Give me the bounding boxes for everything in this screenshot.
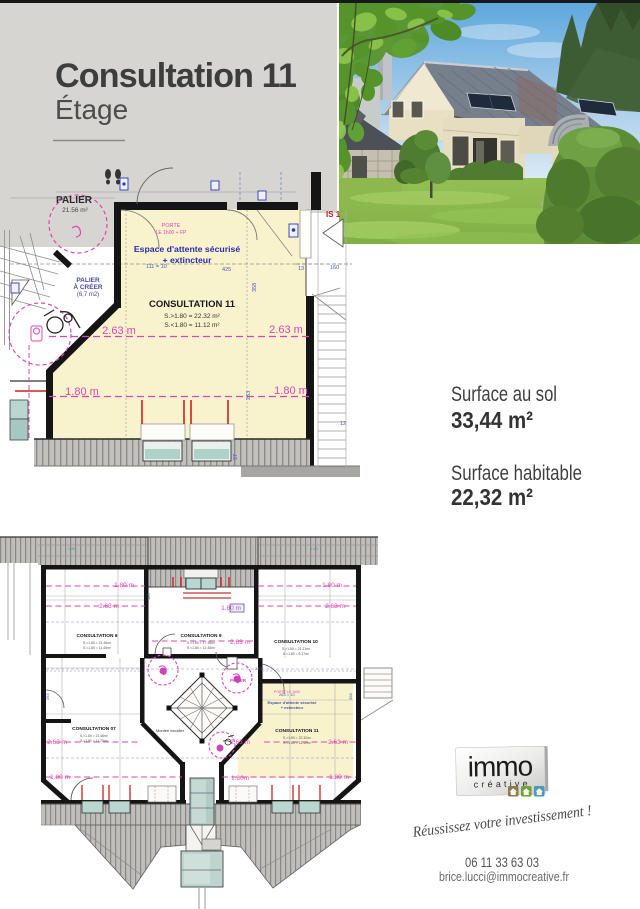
svg-text:358: 358 (252, 283, 258, 292)
svg-text:PALIER: PALIER (76, 277, 100, 284)
svg-text:CONSULTATION 10: CONSULTATION 10 (274, 639, 318, 645)
svg-text:1.80 m: 1.80 m (329, 774, 349, 781)
svg-text:1.80 m: 1.80 m (65, 386, 99, 398)
svg-text:263 = 10: 263 = 10 (279, 692, 295, 697)
svg-text:CONSULTATION 07: CONSULTATION 07 (72, 726, 116, 732)
svg-text:13: 13 (298, 266, 304, 272)
svg-text:1 80: 1 80 (310, 546, 319, 551)
svg-text:S.>1.80 = 21.46m²: S.>1.80 = 21.46m² (80, 734, 109, 738)
svg-text:(6,7 m2): (6,7 m2) (77, 292, 99, 298)
svg-text:06 11 33 63 03: 06 11 33 63 03 (465, 855, 539, 870)
svg-text:LE 1h00 + FP: LE 1h00 + FP (156, 230, 187, 236)
svg-text:S.<1.80 = 11.12 m²: S.<1.80 = 11.12 m² (164, 322, 220, 329)
svg-text:CONSULTATION 6: CONSULTATION 6 (76, 633, 117, 639)
svg-text:S.>1.80 = 21.21m²: S.>1.80 = 21.21m² (282, 647, 311, 651)
svg-text:S.<1.80 = 11.46m²: S.<1.80 = 11.46m² (83, 646, 112, 650)
svg-text:Espace d'attente sécurisé: Espace d'attente sécurisé (134, 244, 241, 254)
svg-text:2.63 m: 2.63 m (47, 739, 67, 746)
svg-text:2.63 m: 2.63 m (230, 739, 250, 746)
svg-text:240: 240 (255, 666, 262, 671)
svg-text:2.63 m: 2.63 m (328, 739, 348, 746)
svg-text:1 80: 1 80 (68, 546, 77, 551)
svg-text:S.<1.80 = 11.76m²: S.<1.80 = 11.76m² (80, 739, 109, 743)
svg-text:Surface habitable: Surface habitable (451, 462, 582, 485)
svg-text:S.>1.80 = 17.38m²: S.>1.80 = 17.38m² (187, 641, 216, 645)
svg-text:S.<1.80 = 11.12m²: S.<1.80 = 11.12m² (283, 741, 312, 745)
svg-text:+ extincteur: + extincteur (281, 705, 304, 710)
svg-text:1.80 m: 1.80 m (221, 605, 241, 612)
svg-text:S.>1.80 = 22.32 m²: S.>1.80 = 22.32 m² (164, 313, 220, 320)
svg-text:S.<1.80 = 12.46m²: S.<1.80 = 12.46m² (187, 646, 216, 650)
svg-text:111 = 10: 111 = 10 (146, 264, 167, 270)
svg-text:À CRÉER: À CRÉER (73, 282, 103, 291)
svg-text:1.80m: 1.80m (231, 775, 249, 782)
svg-text:33,44 m²: 33,44 m² (451, 407, 533, 433)
svg-text:Montée escalier: Montée escalier (156, 728, 185, 733)
svg-text:S.<1.80 = 9.17m²: S.<1.80 = 9.17m² (283, 652, 310, 656)
svg-text:263: 263 (246, 391, 252, 400)
svg-text:2.63 m: 2.63 m (325, 603, 345, 610)
svg-text:+ extincteur: + extincteur (162, 255, 212, 265)
svg-text:301: 301 (57, 196, 66, 202)
svg-text:180: 180 (146, 593, 151, 600)
svg-text:1.80 m: 1.80 m (50, 774, 70, 781)
svg-text:Surface au sol: Surface au sol (451, 383, 557, 406)
svg-text:CONSULTATION 11: CONSULTATION 11 (275, 728, 319, 734)
svg-text:PALIER: PALIER (230, 678, 247, 683)
svg-text:57: 57 (233, 454, 239, 460)
svg-text:brice.lucci@immocreative.fr: brice.lucci@immocreative.fr (439, 869, 570, 884)
svg-text:263: 263 (45, 693, 50, 700)
svg-text:21.56 m²: 21.56 m² (62, 207, 88, 214)
svg-text:IS 1: IS 1 (326, 210, 341, 219)
svg-text:22,32 m²: 22,32 m² (451, 484, 533, 510)
svg-text:2.63 m: 2.63 m (230, 639, 250, 646)
svg-text:CONSULTATION 11: CONSULTATION 11 (149, 299, 236, 310)
svg-text:1.80 m: 1.80 m (114, 582, 134, 589)
svg-text:1.80 m: 1.80 m (322, 582, 342, 589)
svg-text:Étage: Étage (55, 94, 128, 125)
svg-text:358: 358 (348, 693, 353, 700)
svg-text:425: 425 (222, 267, 231, 273)
svg-text:1.80 m: 1.80 m (274, 385, 308, 397)
svg-text:2.63 m: 2.63 m (269, 324, 303, 336)
svg-text:Consultation 11: Consultation 11 (55, 57, 296, 95)
svg-text:S.>1.80 = 22.32m²: S.>1.80 = 22.32m² (283, 736, 312, 740)
svg-text:2.63 m: 2.63 m (99, 603, 119, 610)
svg-text:2.63 m: 2.63 m (102, 325, 136, 337)
svg-text:CONSULTATION 9: CONSULTATION 9 (180, 633, 221, 639)
svg-text:S.>1.80 = 21.46m²: S.>1.80 = 21.46m² (83, 641, 112, 645)
svg-text:12: 12 (340, 421, 346, 427)
svg-text:PORTE: PORTE (162, 223, 181, 229)
svg-text:160: 160 (330, 265, 339, 271)
